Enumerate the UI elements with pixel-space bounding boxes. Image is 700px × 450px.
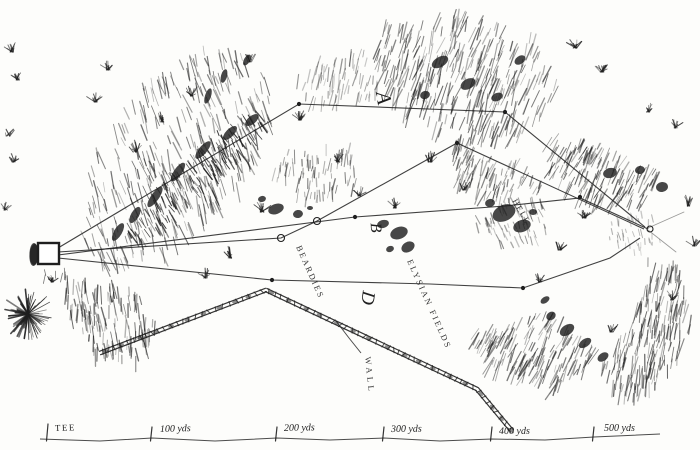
route-point-dot xyxy=(270,278,274,282)
scale-baseline xyxy=(40,434,660,441)
scale-label-2: 200 yds xyxy=(284,422,315,434)
label-elysian-fields: ELYSIAN FIELDS xyxy=(405,258,454,351)
tee-square xyxy=(30,243,66,284)
wall-leader-line xyxy=(336,321,361,353)
bunker-blob xyxy=(203,87,214,104)
scale-label-4: 400 yds xyxy=(499,426,530,437)
bunker-blob xyxy=(459,76,478,93)
hazard-labels: BEARDIESELYSIAN FIELDSWALLHELL xyxy=(294,197,533,395)
bunker-blob xyxy=(292,209,303,219)
bunker-blob xyxy=(267,202,285,217)
bunker-blob xyxy=(385,245,395,253)
bunker-blob xyxy=(539,295,551,306)
route-point-dot xyxy=(521,286,525,290)
bunker-blob xyxy=(655,181,669,193)
bunker-blob xyxy=(634,165,645,175)
scale-label-0: TEE xyxy=(55,422,76,433)
scale-label-5: 500 yds xyxy=(604,423,635,434)
label-beardies: BEARDIES xyxy=(294,244,327,301)
route-point-dot xyxy=(578,195,582,199)
label-route-d: D xyxy=(356,289,379,307)
route-labels: ABD xyxy=(356,87,397,306)
scale-label-3: 300 yds xyxy=(390,424,422,435)
label-route-b: B xyxy=(367,222,385,233)
label-wall: WALL xyxy=(363,356,377,394)
route-point-dot xyxy=(297,102,301,106)
bunker-blob xyxy=(388,224,409,241)
bunker-blob xyxy=(257,195,266,203)
route-point-dot xyxy=(455,141,459,145)
bunker-blob xyxy=(399,239,416,255)
scale-label-1: 100 yds xyxy=(160,423,191,435)
route-point-dot xyxy=(503,110,507,114)
tuft-layer xyxy=(1,40,700,340)
wall-line xyxy=(99,288,514,434)
bunker-blob xyxy=(110,221,127,242)
route-point-dot xyxy=(353,215,357,219)
engraving-page: ABDBEARDIESELYSIAN FIELDSWALLHELLTEE100 … xyxy=(0,0,700,450)
bunker-blob xyxy=(307,206,313,210)
teeing-ground xyxy=(38,243,59,264)
distance-scale: TEE100 yds200 yds300 yds400 yds500 yds xyxy=(40,422,660,441)
bunker-blob xyxy=(529,209,537,215)
golf-hole-map: ABDBEARDIESELYSIAN FIELDSWALLHELLTEE100 … xyxy=(0,0,700,450)
